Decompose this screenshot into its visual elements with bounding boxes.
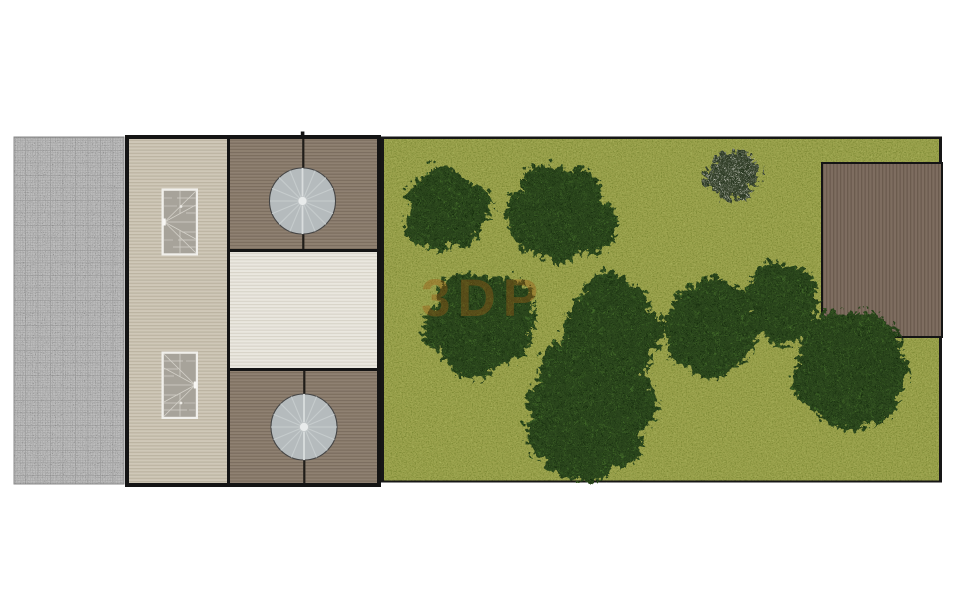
svg-text:3DP: 3DP (421, 269, 545, 328)
